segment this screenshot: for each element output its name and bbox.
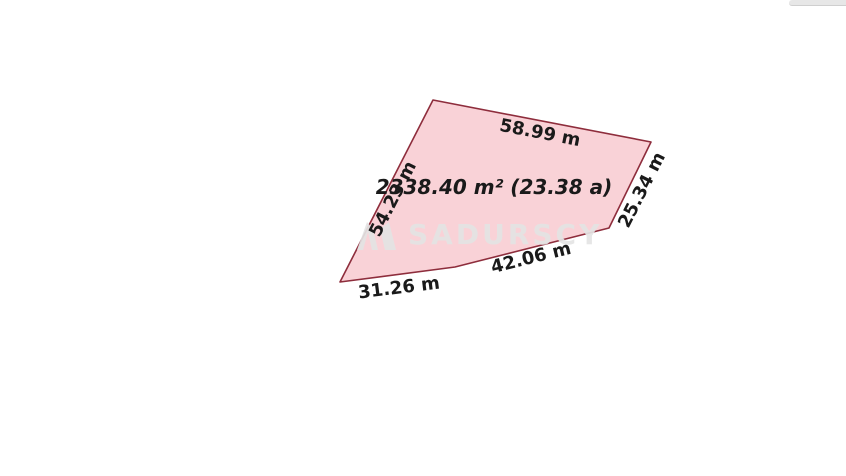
area-label: 2338.40 m² (23.38 a) [376, 175, 613, 199]
top-right-ui-artifact [789, 0, 846, 6]
parcel-diagram-canvas: SADURSCY 58.99 m 25.34 m 42.06 m 31.26 m… [0, 0, 846, 476]
parcel-shape-svg [0, 0, 846, 476]
